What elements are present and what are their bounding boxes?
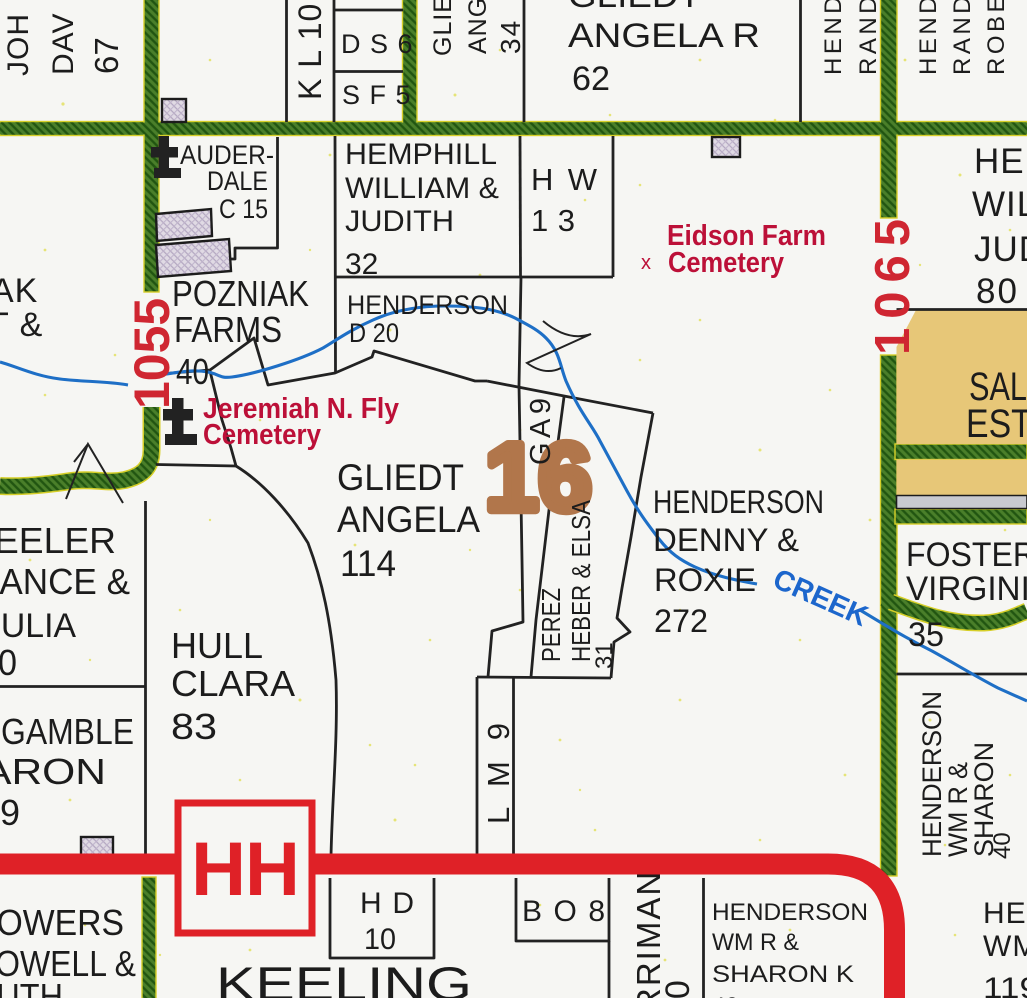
svg-text:HENDERSON: HENDERSON <box>347 290 508 320</box>
svg-text:40: 40 <box>0 642 17 683</box>
svg-text:80: 80 <box>976 272 1019 311</box>
svg-text:34: 34 <box>495 19 526 54</box>
svg-text:JUDITH: JUDITH <box>974 230 1027 269</box>
svg-text:JULIA: JULIA <box>0 607 76 645</box>
svg-text:RANDY: RANDY <box>855 0 882 75</box>
svg-text:GAMBLE: GAMBLE <box>1 711 134 752</box>
svg-text:DAV: DAV <box>47 13 80 75</box>
svg-text:32: 32 <box>345 248 378 281</box>
svg-text:DALE: DALE <box>207 166 268 196</box>
svg-text:H D: H D <box>360 887 414 920</box>
svg-text:HENDERSON: HENDERSON <box>712 899 868 926</box>
svg-text:272: 272 <box>654 603 708 639</box>
svg-text:H W: H W <box>531 162 598 197</box>
svg-text:SHARON: SHARON <box>0 751 106 792</box>
svg-text:ANGELA: ANGELA <box>337 499 480 540</box>
svg-text:WHEELER: WHEELER <box>0 520 116 561</box>
svg-text:NANCE &: NANCE & <box>0 561 130 602</box>
svg-text:L M 9: L M 9 <box>481 723 516 824</box>
svg-text:B O 8: B O 8 <box>522 895 605 928</box>
svg-text:G A 9: G A 9 <box>525 398 557 465</box>
svg-text:ANGELA R: ANGELA R <box>568 17 760 55</box>
svg-text:D S 6: D S 6 <box>341 29 414 59</box>
svg-text:119: 119 <box>983 972 1027 998</box>
svg-text:SHARON K: SHARON K <box>712 961 854 988</box>
svg-text:40: 40 <box>989 832 1016 859</box>
svg-text:T &: T & <box>0 306 43 344</box>
svg-text:BOWERS: BOWERS <box>0 902 124 943</box>
svg-text:ROBERT: ROBERT <box>983 0 1010 75</box>
svg-text:RUTH: RUTH <box>0 976 63 998</box>
svg-text:1055: 1055 <box>124 298 180 409</box>
svg-text:HH: HH <box>191 827 299 912</box>
svg-text:40: 40 <box>659 980 697 998</box>
svg-text:WM R &: WM R & <box>983 930 1027 963</box>
svg-text:HENDERSON: HENDERSON <box>915 0 942 75</box>
svg-text:K L 10: K L 10 <box>292 3 328 100</box>
svg-text:RRIMAN: RRIMAN <box>630 870 667 998</box>
svg-text:1065: 1065 <box>866 210 920 355</box>
svg-text:C 15: C 15 <box>219 194 268 224</box>
svg-text:ANGELA: ANGELA <box>464 0 492 54</box>
svg-text:31: 31 <box>591 642 618 669</box>
svg-text:67: 67 <box>88 37 125 74</box>
svg-text:Cemetery: Cemetery <box>668 247 784 279</box>
svg-text:114: 114 <box>340 543 396 584</box>
svg-text:HENDERSON: HENDERSON <box>653 484 824 520</box>
svg-text:JUDITH: JUDITH <box>345 205 454 238</box>
svg-text:FARMS: FARMS <box>174 309 282 350</box>
svg-text:WILLIAM &: WILLIAM & <box>345 172 499 205</box>
svg-text:KEELING: KEELING <box>216 957 472 998</box>
svg-text:ROXIE: ROXIE <box>654 562 756 598</box>
svg-text:ESTAT: ESTAT <box>966 402 1027 446</box>
svg-text:S F 5: S F 5 <box>342 80 412 110</box>
svg-text:HULL: HULL <box>171 625 263 666</box>
svg-text:HENDERSON: HENDERSON <box>820 0 847 75</box>
svg-text:40: 40 <box>176 351 209 392</box>
svg-text:GLIEDT: GLIEDT <box>568 0 701 15</box>
svg-text:DENNY &: DENNY & <box>653 522 799 558</box>
svg-text:HENDERSON: HENDERSON <box>983 897 1027 930</box>
svg-text:WILLIAM &: WILLIAM & <box>972 185 1027 224</box>
svg-text:RANDY: RANDY <box>949 0 976 75</box>
svg-text:83: 83 <box>171 706 217 747</box>
svg-text:Cemetery: Cemetery <box>203 419 321 451</box>
svg-text:WM R &: WM R & <box>712 929 799 956</box>
svg-text:HEBER & ELSA: HEBER & ELSA <box>566 499 596 662</box>
svg-text:POZNIAK: POZNIAK <box>172 273 309 314</box>
svg-text:AK: AK <box>0 272 38 310</box>
svg-text:GLIEDT: GLIEDT <box>337 457 464 498</box>
svg-text:PEREZ: PEREZ <box>536 588 566 662</box>
svg-text:D 20: D 20 <box>349 318 399 348</box>
svg-text:62: 62 <box>572 60 610 98</box>
svg-text:GLIEDT: GLIEDT <box>429 0 457 56</box>
svg-text:40: 40 <box>712 993 739 998</box>
svg-text:VIRGINIA: VIRGINIA <box>906 570 1027 608</box>
svg-text:FOSTER: FOSTER <box>906 536 1027 574</box>
svg-text:CLARA: CLARA <box>171 663 295 704</box>
svg-text:x: x <box>641 252 651 274</box>
svg-text:10: 10 <box>364 923 396 956</box>
svg-text:9: 9 <box>0 792 20 833</box>
svg-text:HEMPHILL: HEMPHILL <box>345 138 497 171</box>
svg-text:JOH: JOH <box>2 13 35 76</box>
svg-text:35: 35 <box>908 616 944 654</box>
svg-text:HENDERSON: HENDERSON <box>974 142 1027 181</box>
